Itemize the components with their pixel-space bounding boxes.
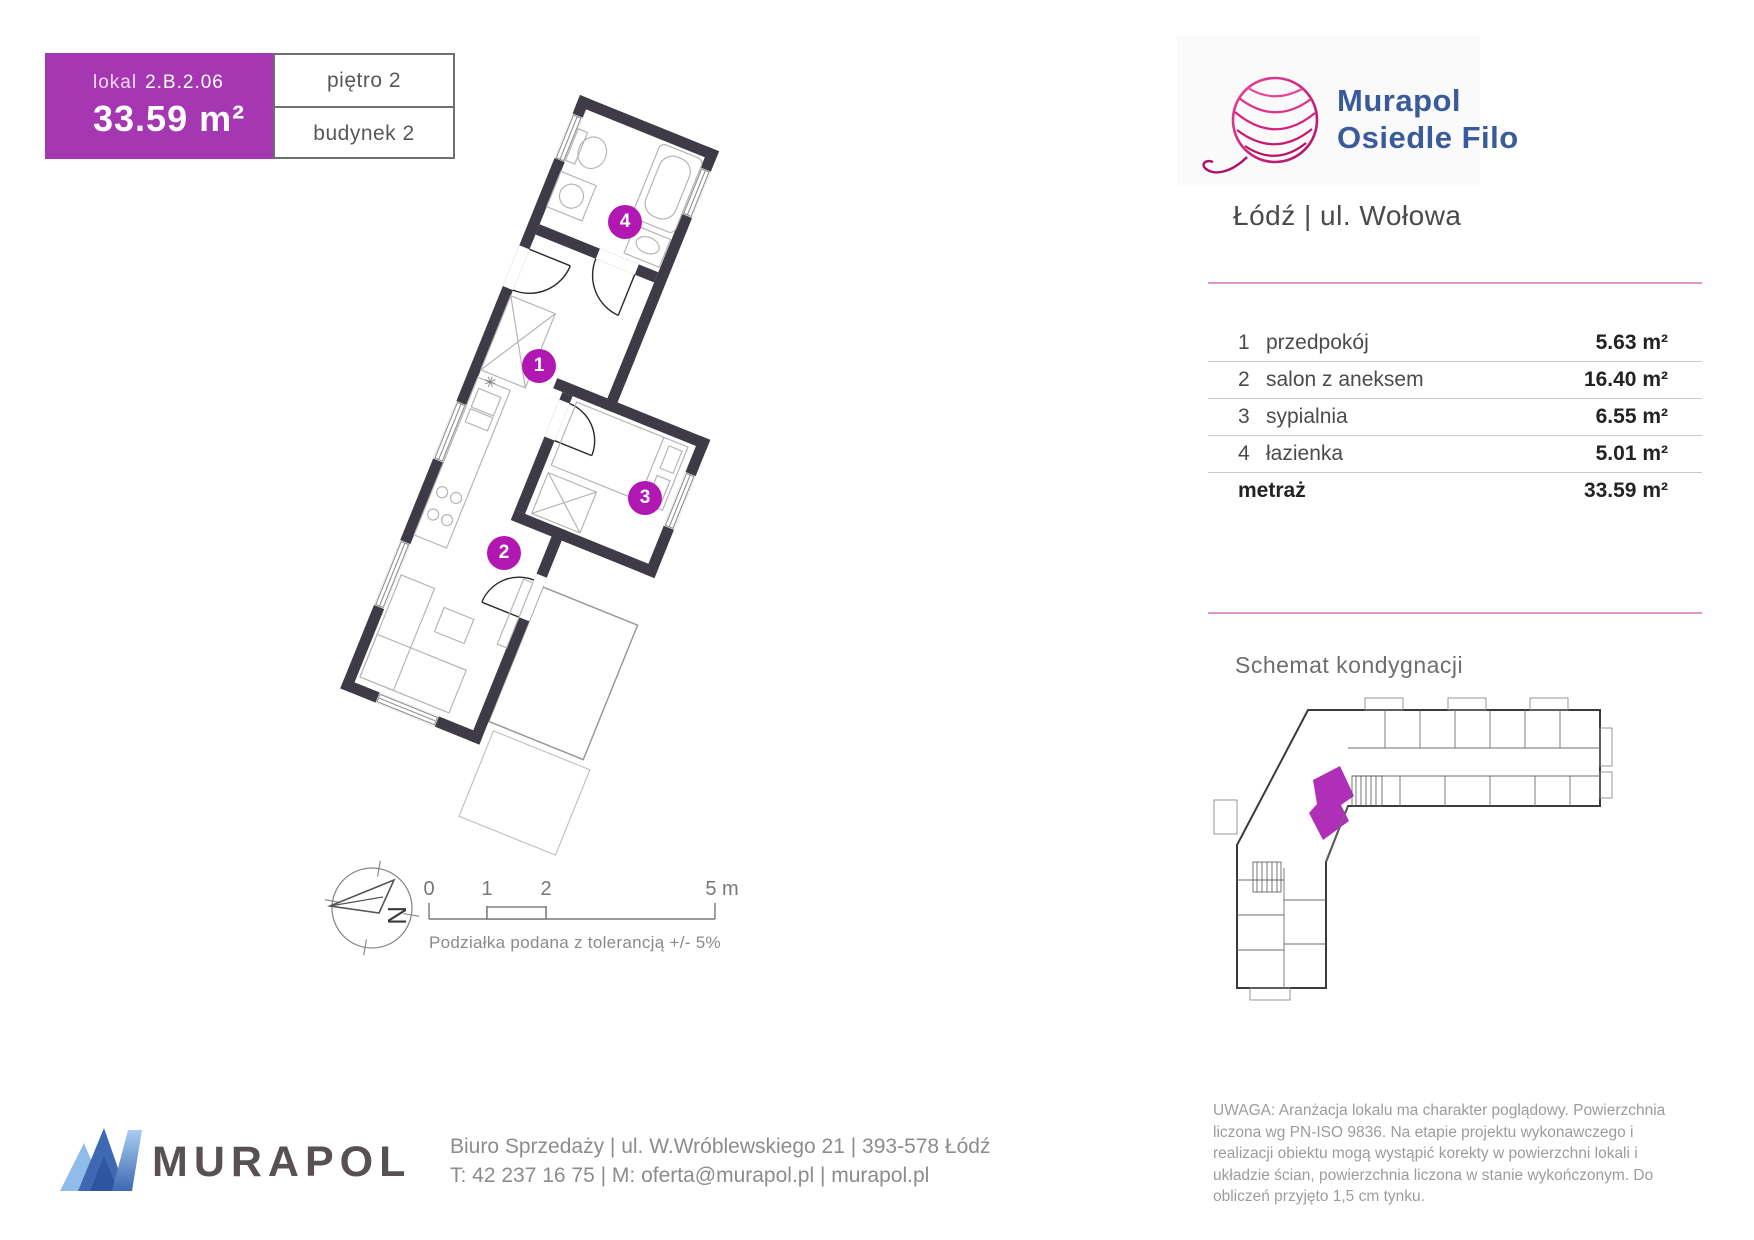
scale-tick-0: 0 [423,878,434,901]
compass: N [316,852,427,963]
table-row: 4 łazienka 5.01 m² [1208,436,1702,473]
compass-letter: N [382,906,412,925]
room-badge-1: 1 [522,349,556,383]
room-number: 1 [1238,331,1266,355]
footer-address: Biuro Sprzedaży | ul. W.Wróblewskiego 21… [450,1132,990,1161]
brand-name: Murapol Osiedle Filo [1337,82,1519,156]
unit-summary-box: lokal2.B.2.06 33.59 m² [45,53,273,159]
balcony-outline [489,587,638,760]
table-row: 2 salon z aneksem 16.40 m² [1208,362,1702,399]
floor-building-box: piętro 2 budynek 2 [273,53,455,159]
room-area: 6.55 m² [1596,405,1668,429]
disclaimer-text: UWAGA: Aranżacja lokalu ma charakter pog… [1213,1100,1670,1208]
scale-tolerance-note: Podziałka podana z tolerancją +/- 5% [429,933,721,953]
total-label: metraż [1238,479,1306,503]
footer-contact-block: Biuro Sprzedaży | ul. W.Wróblewskiego 21… [450,1132,990,1190]
unit-code-line: lokal2.B.2.06 [93,72,273,94]
unit-code: 2.B.2.06 [145,72,224,93]
room-area: 5.01 m² [1596,442,1668,466]
room-badge-2: 2 [487,536,521,570]
schematic-title: Schemat kondygnacji [1235,652,1463,679]
room-area: 16.40 m² [1584,368,1668,392]
table-row: 1 przedpokój 5.63 m² [1208,325,1702,362]
terrace-outline [459,731,590,855]
vector-layer: ✳ N [0,0,1754,1240]
room-name: łazienka [1266,442,1343,466]
footer-logo-icon [60,1128,142,1191]
project-location: Łódź | ul. Wołowa [1233,200,1461,232]
brand-name-line2: Osiedle Filo [1337,119,1519,156]
scalebar-graphic [429,903,715,919]
room-name: przedpokój [1266,331,1369,355]
room-area-table: 1 przedpokój 5.63 m² 2 salon z aneksem 1… [1208,283,1702,509]
plan-walls [340,95,812,782]
table-row: 3 sypialnia 6.55 m² [1208,399,1702,436]
room-number: 4 [1238,442,1266,466]
table-total-row: metraż 33.59 m² [1208,473,1702,509]
floor-plan-drawing: ✳ [313,95,823,855]
total-area: 33.59 m² [1584,479,1668,503]
room-number: 2 [1238,368,1266,392]
scale-tick-1: 1 [481,878,492,901]
footer-brand-name: MURAPOL [152,1138,411,1187]
plan-furniture [357,112,790,759]
floor-schematic [1214,698,1612,1000]
unit-area: 33.59 m² [93,98,273,140]
room-number: 3 [1238,405,1266,429]
footer-phone-email: T: 42 237 16 75 | M: oferta@murapol.pl |… [450,1161,990,1190]
room-name: salon z aneksem [1266,368,1424,392]
floor-label: piętro 2 [275,55,453,108]
room-area: 5.63 m² [1596,331,1668,355]
room-badge-3: 3 [628,481,662,515]
scale-tick-2: 2 [540,878,551,901]
unit-code-label: lokal [93,72,137,93]
scale-tick-5m: 5 m [705,878,738,901]
room-badge-4: 4 [608,205,642,239]
table-bottom-rule [1208,612,1702,614]
building-label: budynek 2 [275,108,453,159]
room-name: sypialnia [1266,405,1348,429]
brand-name-line1: Murapol [1337,82,1519,119]
